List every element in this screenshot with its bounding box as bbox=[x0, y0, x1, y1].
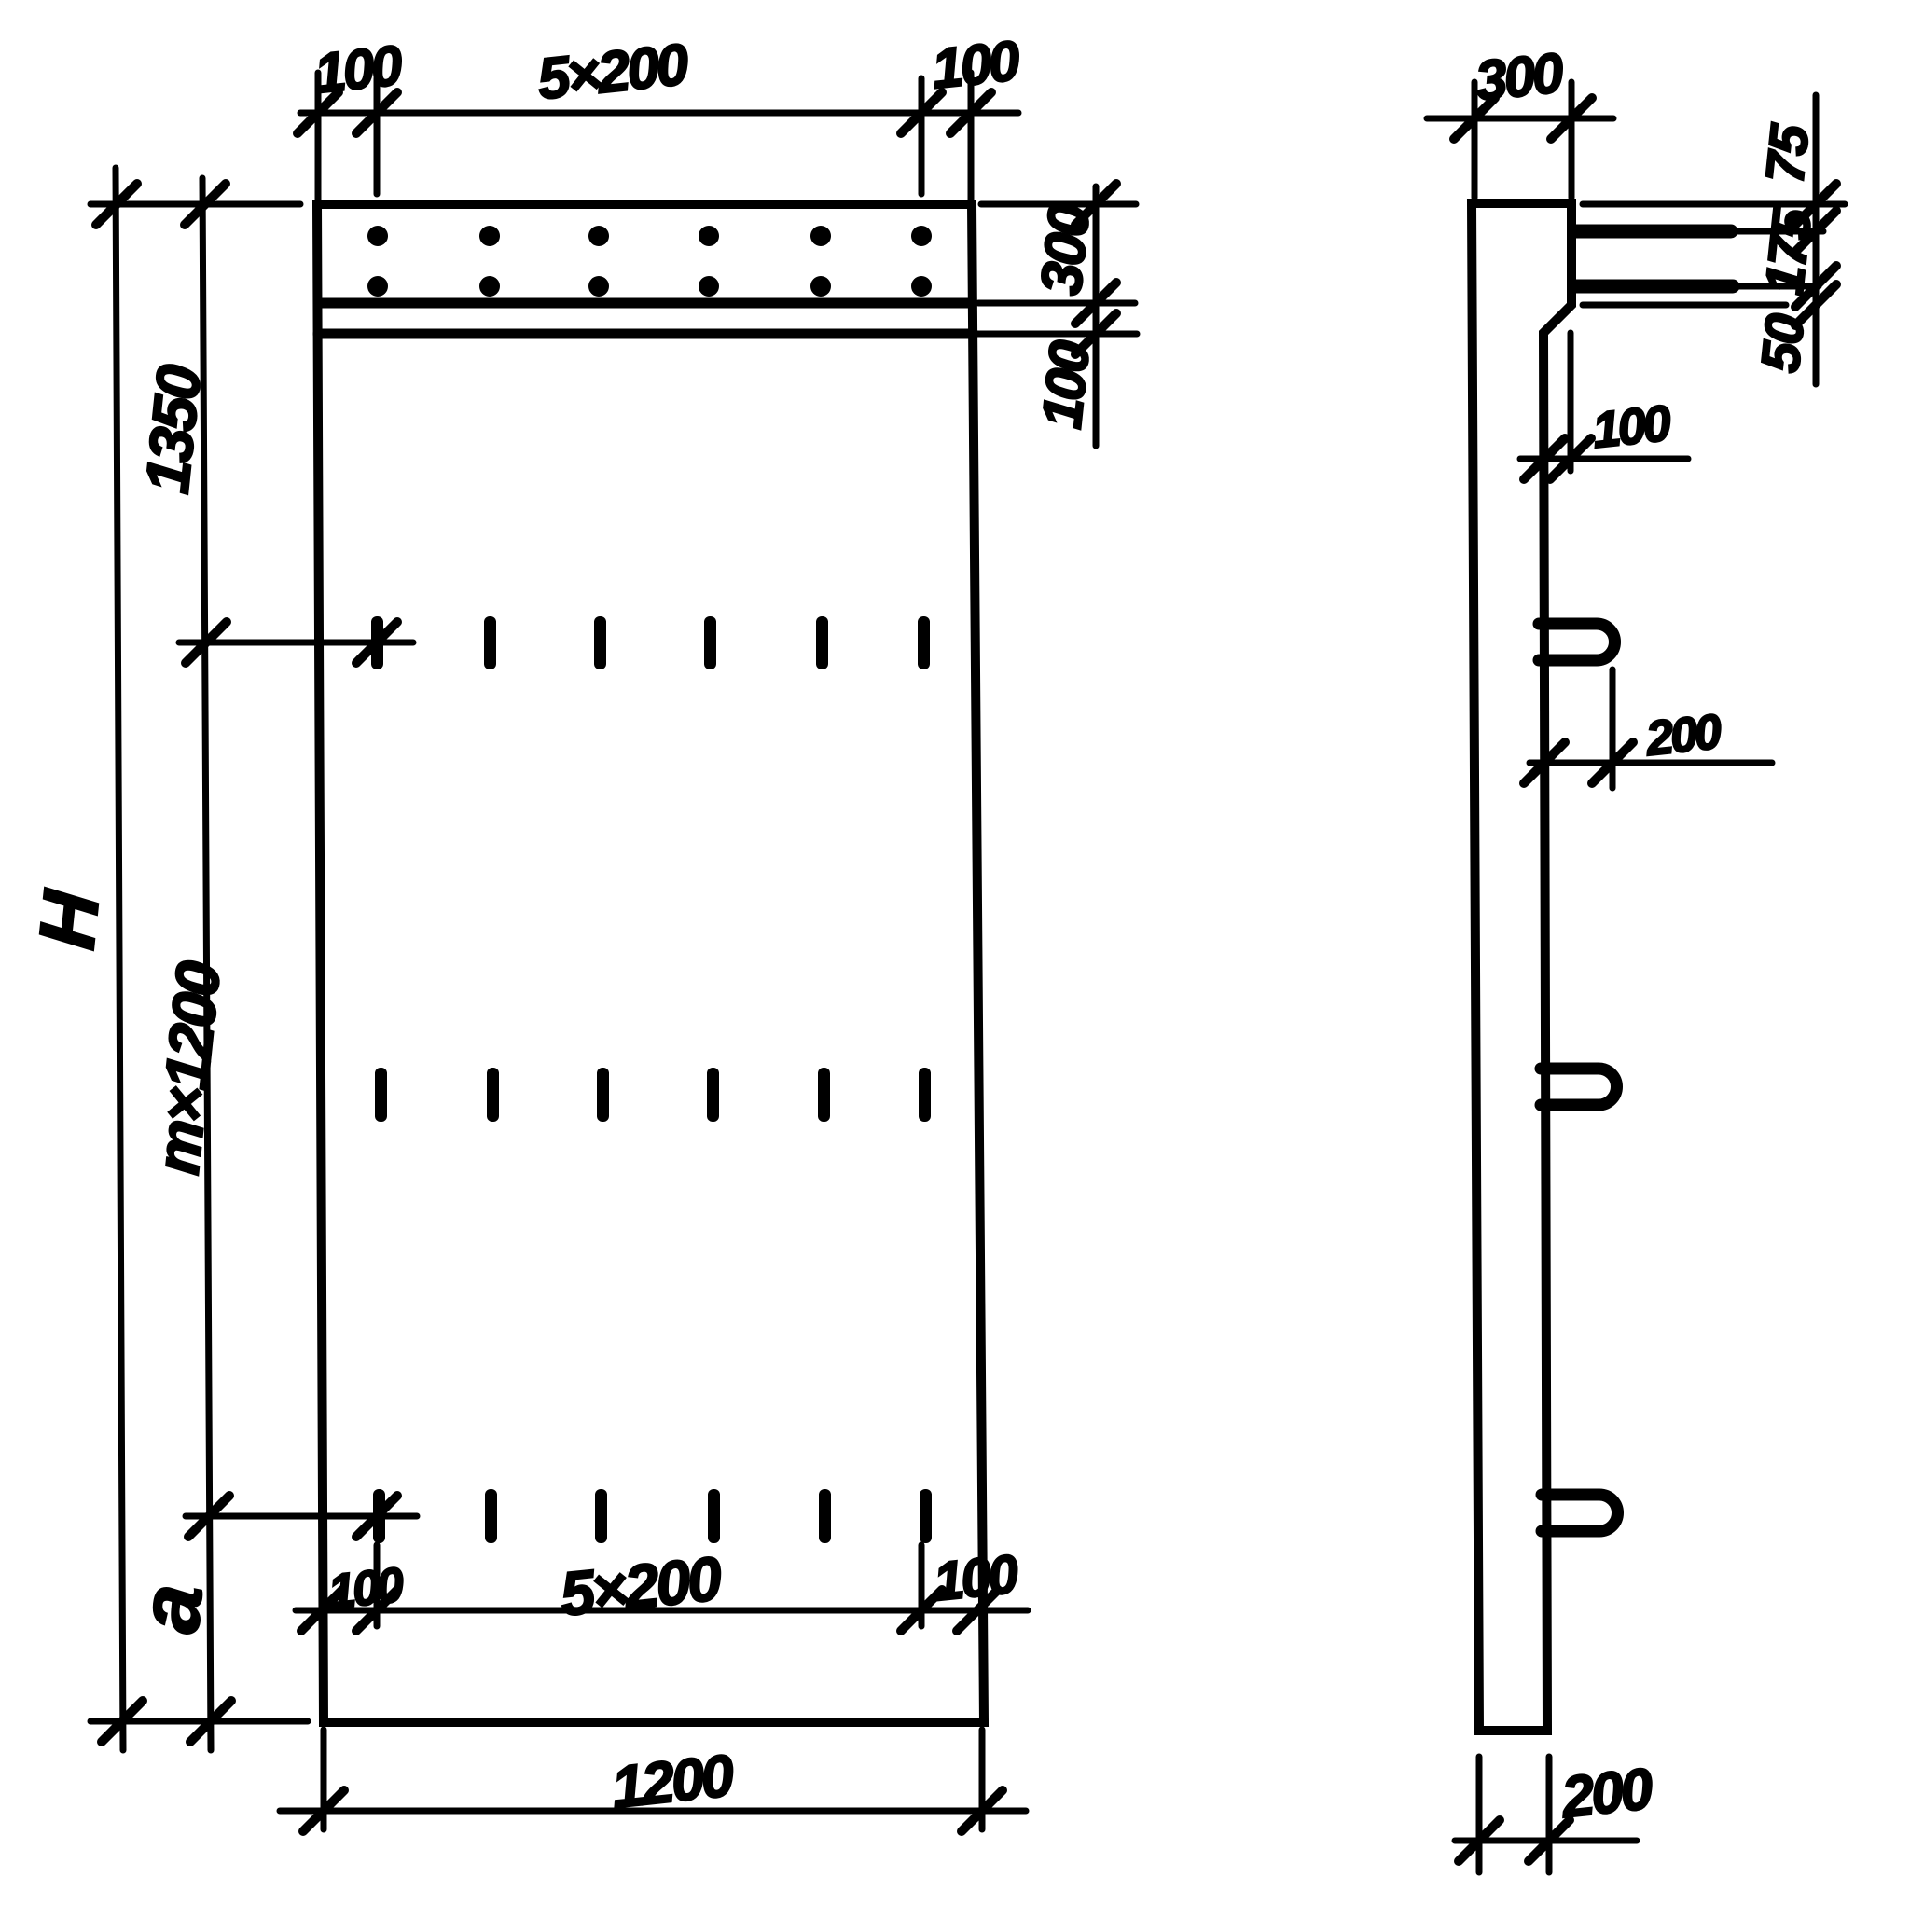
svg-text:100: 100 bbox=[311, 34, 405, 104]
svg-text:100: 100 bbox=[931, 1543, 1021, 1612]
svg-text:50: 50 bbox=[1750, 311, 1816, 376]
svg-text:200: 200 bbox=[1642, 705, 1723, 766]
svg-text:H: H bbox=[22, 886, 117, 954]
svg-text:100: 100 bbox=[325, 1558, 406, 1620]
svg-text:m×1200: m×1200 bbox=[143, 958, 234, 1178]
svg-text:175: 175 bbox=[1754, 205, 1823, 298]
svg-text:300: 300 bbox=[1029, 201, 1102, 298]
svg-text:200: 200 bbox=[1557, 1757, 1655, 1830]
svg-text:100: 100 bbox=[1590, 395, 1674, 459]
svg-text:1200: 1200 bbox=[609, 1743, 738, 1820]
svg-text:100: 100 bbox=[929, 29, 1022, 100]
svg-text:100: 100 bbox=[1031, 338, 1101, 431]
svg-text:a: a bbox=[121, 1580, 221, 1637]
svg-text:300: 300 bbox=[1473, 41, 1566, 112]
svg-text:5×200: 5×200 bbox=[557, 1543, 725, 1629]
svg-text:1350: 1350 bbox=[131, 361, 214, 496]
svg-text:5×200: 5×200 bbox=[534, 33, 691, 113]
svg-text:75: 75 bbox=[1754, 121, 1820, 186]
